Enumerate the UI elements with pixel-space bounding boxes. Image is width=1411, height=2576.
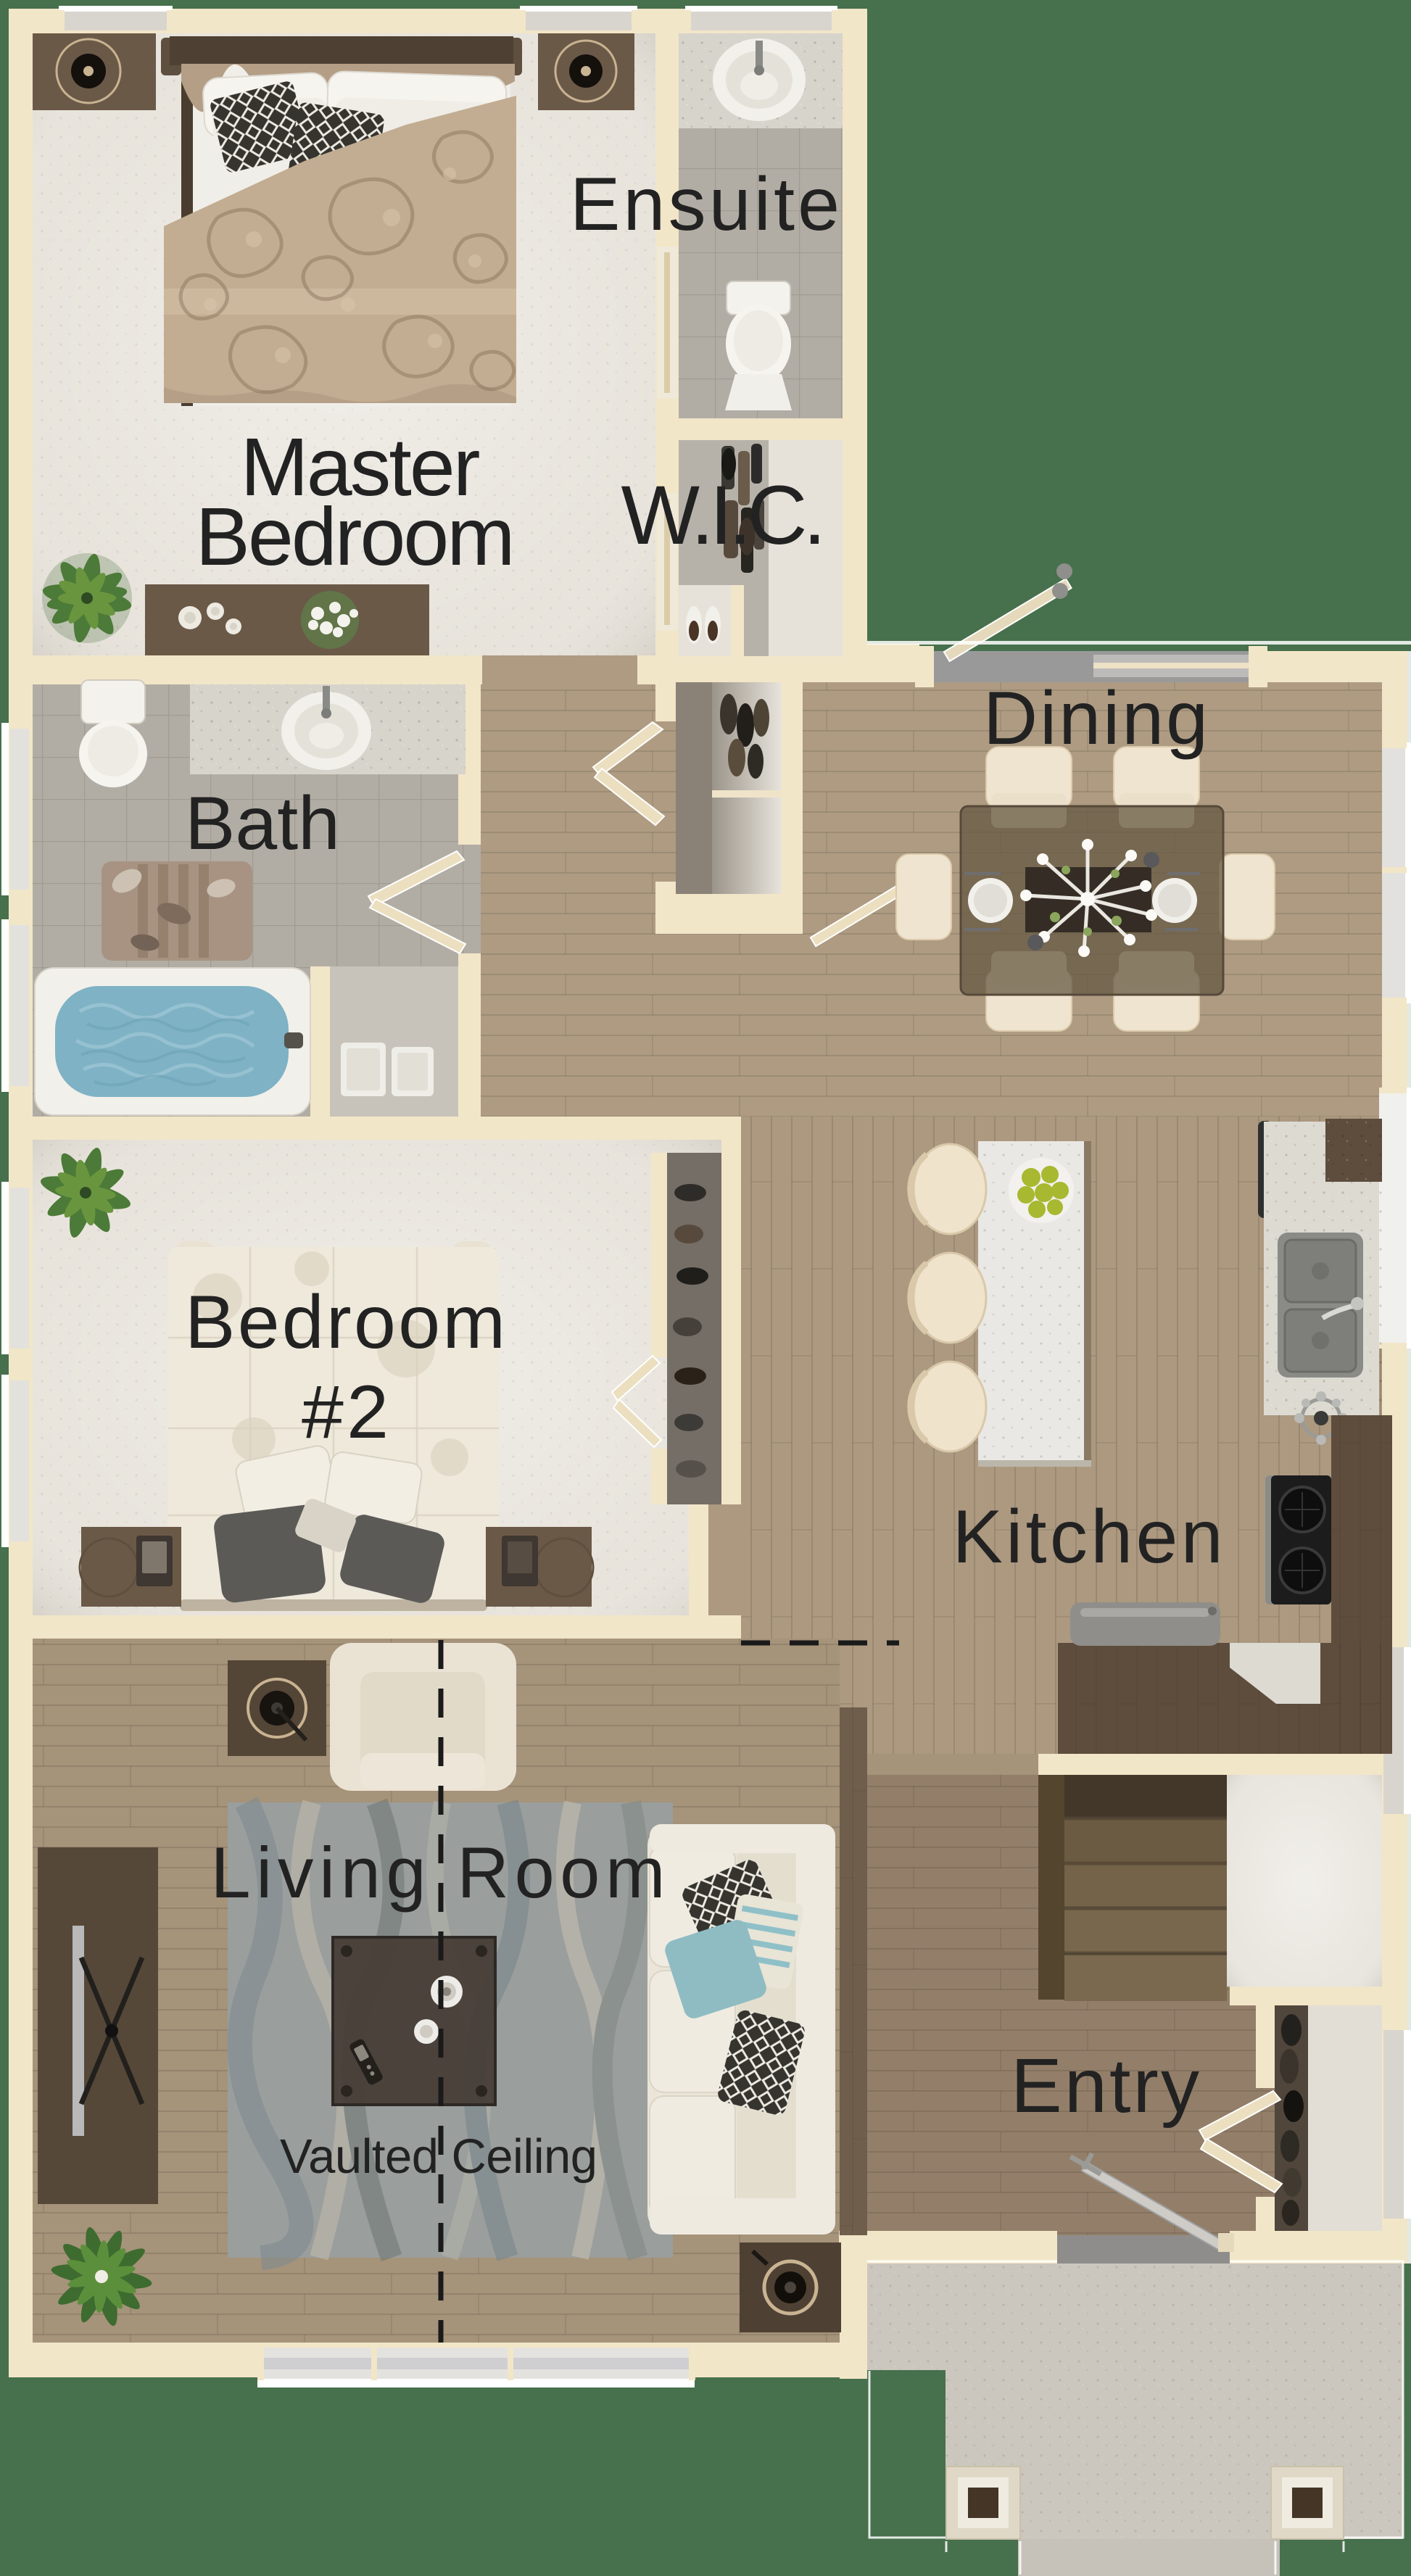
svg-text:Vaulted Ceiling: Vaulted Ceiling: [280, 2129, 597, 2184]
svg-text:W.I.C.: W.I.C.: [621, 469, 827, 562]
svg-text:Ensuite: Ensuite: [570, 162, 840, 247]
svg-text:Dining: Dining: [983, 676, 1208, 761]
svg-text:Bedroom: Bedroom: [196, 491, 516, 582]
svg-text:Bath: Bath: [185, 782, 340, 866]
svg-text:Living Room: Living Room: [211, 1832, 666, 1913]
svg-text:Entry: Entry: [1011, 2043, 1199, 2129]
svg-text:Bedroom: Bedroom: [185, 1280, 505, 1364]
